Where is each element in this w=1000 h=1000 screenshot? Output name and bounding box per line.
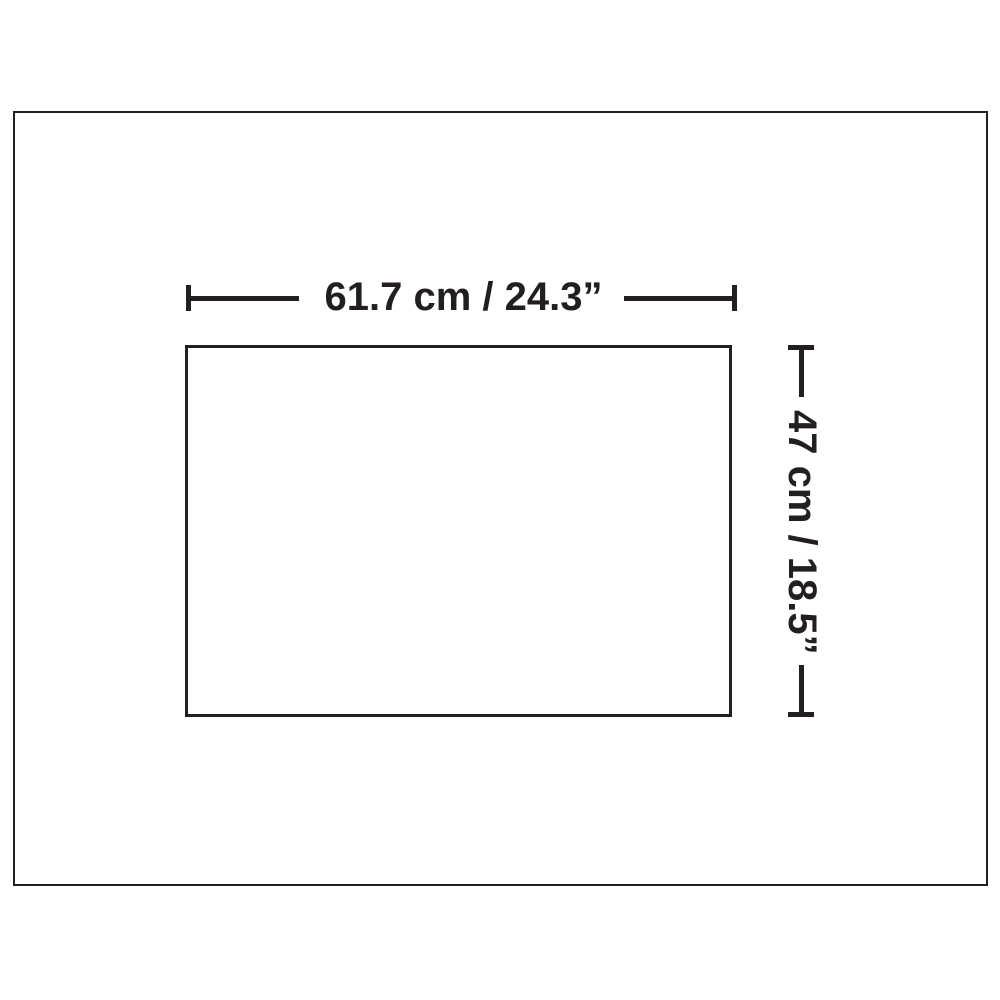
height-dimension-top-line <box>799 350 804 397</box>
height-dimension-label: 47 cm / 18.5” <box>780 410 822 655</box>
height-dimension-bottom-line <box>799 665 804 712</box>
width-dimension-label: 61.7 cm / 24.3” <box>325 277 603 320</box>
product-rectangle <box>185 345 732 717</box>
width-dimension-left-line <box>191 296 299 301</box>
width-dimension-right-line <box>624 296 732 301</box>
height-dimension-bottom-tick-icon <box>788 712 814 717</box>
height-dimension: 47 cm / 18.5” <box>788 345 814 717</box>
width-dimension: 61.7 cm / 24.3” <box>186 285 737 311</box>
dimension-diagram: 61.7 cm / 24.3” 47 cm / 18.5” <box>0 0 1000 1000</box>
width-dimension-right-tick-icon <box>732 285 737 311</box>
